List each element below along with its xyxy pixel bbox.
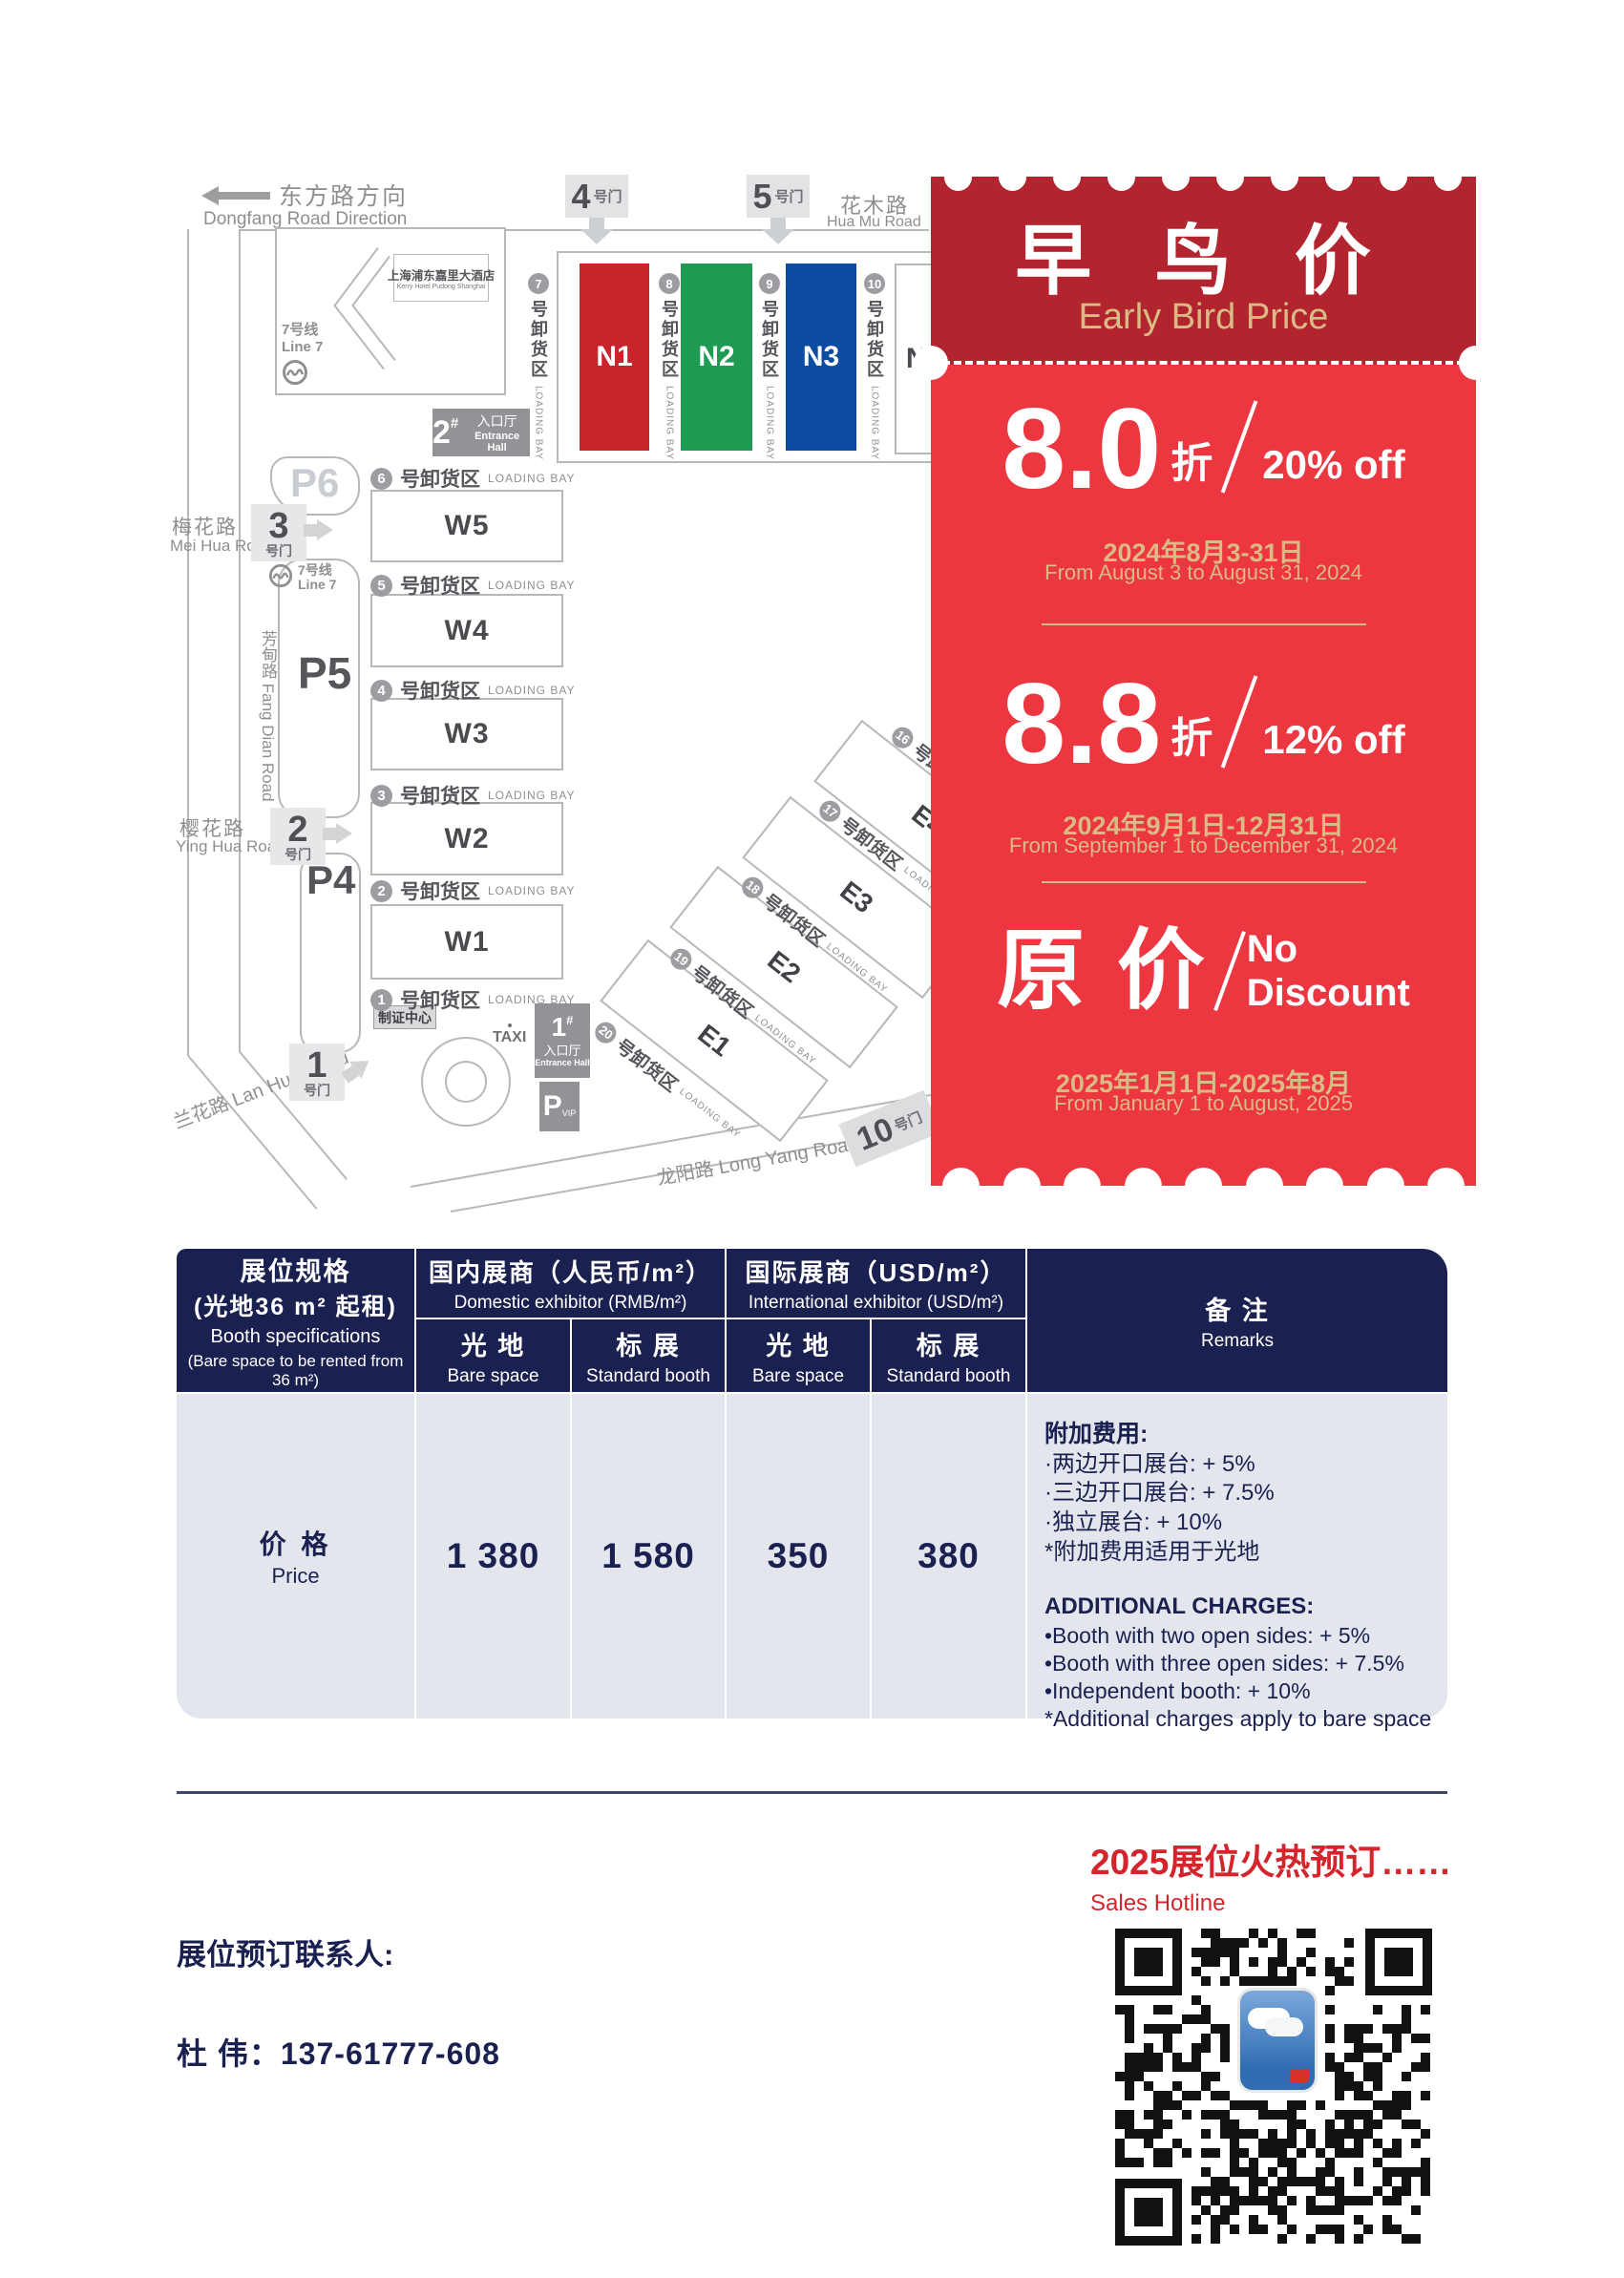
- metro-line7-p5: 7号线 Line 7: [268, 563, 336, 591]
- qr-center-logo: [1237, 1988, 1318, 2093]
- hall-w2: W2: [370, 802, 563, 875]
- hall-n1: N1: [580, 264, 649, 451]
- scallop: [1306, 1168, 1343, 1205]
- slash: [1221, 675, 1258, 768]
- gate-4-arrow-icon: [589, 218, 604, 229]
- sales-hotline: 2025展位火热预订…… Sales Hotline: [1090, 1833, 1451, 1917]
- hall-w1: W1: [370, 904, 563, 980]
- loading-bay-9: 9号卸货区LOADING BAY: [757, 273, 782, 460]
- entrance-hall-2: 2# 入口厅 Entrance Hall: [432, 409, 530, 456]
- vip-parking: PVIP: [539, 1082, 580, 1131]
- intl-bare-header: 光 地Bare space: [727, 1319, 870, 1392]
- scallop: [1185, 1168, 1222, 1205]
- scallop: [944, 163, 972, 191]
- loading-bay-5: 5号卸货区LOADING BAY: [370, 571, 575, 600]
- scallop: [1434, 163, 1462, 191]
- gate-3: 3号门: [251, 504, 306, 561]
- road-line: [239, 229, 241, 1052]
- scallop: [1271, 163, 1298, 191]
- scallop: [942, 1168, 980, 1205]
- loading-bay-1: 1号卸货区LOADING BAY: [370, 985, 575, 1014]
- col-spec-header: 展位规格 (光地36 m² 起租) Booth specifications (…: [177, 1249, 414, 1392]
- intl-header: 国际展商（USD/m²） International exhibitor (US…: [727, 1249, 1025, 1318]
- gate-5-arrow-icon: [762, 229, 794, 244]
- scallop: [1107, 163, 1135, 191]
- scallop: [1053, 163, 1081, 191]
- price-intl-standard: 380: [872, 1394, 1025, 1719]
- contact-phone[interactable]: 杜 伟：137-61777-608: [177, 2030, 500, 2074]
- entrance-hall-1: 1# 入口厅 Entrance Hall: [535, 1003, 590, 1078]
- loading-bay-4: 4号卸货区LOADING BAY: [370, 676, 575, 705]
- tier-2: 8.8 折 12% off: [931, 673, 1476, 770]
- scallop: [1003, 1168, 1041, 1205]
- slash: [1213, 931, 1246, 1011]
- price-domestic-bare: 1 380: [416, 1394, 570, 1719]
- gate-4: 4号门: [565, 175, 628, 218]
- coupon-notch-right: [1459, 346, 1493, 380]
- gate-2: 2号门: [270, 808, 326, 865]
- scallop: [1427, 1168, 1465, 1205]
- gate-1: 1号门: [289, 1044, 345, 1101]
- intl-standard-header: 标 展Standard booth: [872, 1319, 1025, 1392]
- scallop: [1380, 163, 1407, 191]
- price-domestic-standard: 1 580: [572, 1394, 725, 1719]
- yinghua-road-label-en: Ying Hua Road: [176, 837, 285, 856]
- dongfang-road-label-zh: 东方路方向: [279, 178, 408, 212]
- loading-bay-6: 6号卸货区LOADING BAY: [370, 464, 575, 493]
- remarks-cell: 附加费用: ·两边开口展台: + 5% ·三边开口展台: + 7.5% ·独立展…: [1027, 1394, 1447, 1719]
- metro-icon: [268, 563, 293, 588]
- gold-divider: [1042, 623, 1366, 625]
- hotline-title: 2025展位火热预订……: [1090, 1833, 1451, 1885]
- loading-bay-2: 2号卸货区LOADING BAY: [370, 876, 575, 905]
- taxi-label: TAXI: [493, 1023, 526, 1046]
- hotline-subtitle: Sales Hotline: [1090, 1890, 1451, 1917]
- scallop: [1246, 1168, 1283, 1205]
- coupon-divider: [931, 361, 1476, 365]
- coupon-title-en: Early Bird Price: [931, 297, 1476, 338]
- scallop: [1216, 163, 1244, 191]
- fangdian-road-label: 芳甸路 Fang Dian Road: [256, 630, 280, 831]
- tier-3-date-en: From January 1 to August, 2025: [931, 1091, 1476, 1116]
- domestic-header: 国内展商（人民币/m²） Domestic exhibitor (RMB/m²): [416, 1249, 725, 1318]
- remarks-header: 备 注Remarks: [1027, 1249, 1447, 1392]
- footer-divider: [177, 1791, 1447, 1794]
- hall-w5: W5: [370, 490, 563, 562]
- hall-w4: W4: [370, 594, 563, 667]
- loading-bay-7: 7号卸货区LOADING BAY: [526, 273, 551, 460]
- domestic-standard-header: 标 展Standard booth: [572, 1319, 725, 1392]
- huamu-road-label-en: Hua Mu Road: [827, 214, 921, 231]
- metro-icon: [282, 359, 308, 386]
- roundabout-inner: [445, 1061, 487, 1103]
- price-row-label: 价 格 Price: [177, 1394, 414, 1719]
- loading-bay-8: 8号卸货区LOADING BAY: [657, 273, 682, 460]
- slash: [1221, 400, 1258, 493]
- gold-divider: [1042, 881, 1366, 883]
- hotel-label: 上海浦东嘉里大酒店 Kerry Hotel Pudong Shanghai: [393, 254, 489, 302]
- scallop: [1162, 163, 1190, 191]
- road-line: [187, 229, 189, 1056]
- domestic-bare-header: 光 地Bare space: [416, 1319, 570, 1392]
- loading-bay-10: 10号卸货区LOADING BAY: [862, 273, 887, 460]
- hall-n2: N2: [681, 264, 752, 451]
- metro-line7-hotel: 7号线 Line 7: [282, 319, 323, 390]
- hall-w3: W3: [370, 698, 563, 770]
- coupon-notch-left: [914, 346, 948, 380]
- price-intl-bare: 350: [727, 1394, 870, 1719]
- loading-bay-3: 3号卸货区LOADING BAY: [370, 781, 575, 810]
- tier-1-date-en: From August 3 to August 31, 2024: [931, 560, 1476, 585]
- scallop: [1325, 163, 1353, 191]
- scallop: [1064, 1168, 1101, 1205]
- tier-1: 8.0 折 20% off: [931, 398, 1476, 496]
- gate-2-arrow-icon: [323, 823, 352, 844]
- gate-4-arrow-icon: [580, 229, 613, 244]
- parking-p5-label: P5: [298, 647, 351, 699]
- scallop: [1367, 1168, 1404, 1205]
- tier-3: 原 价 No Discount: [931, 927, 1476, 1015]
- tier-2-date-en: From September 1 to December 31, 2024: [931, 833, 1476, 858]
- gate-5: 5号门: [747, 175, 810, 218]
- hall-n3: N3: [786, 264, 856, 451]
- contact-label: 展位预订联系人:: [177, 1930, 393, 1973]
- taxi-dot: [508, 1023, 512, 1027]
- scallop: [999, 163, 1026, 191]
- gate-3-arrow-icon: [304, 519, 333, 540]
- coupon-title-zh: 早 鸟 价: [931, 200, 1476, 310]
- qr-code[interactable]: [1115, 1929, 1432, 2246]
- gate-5-arrow-icon: [770, 218, 786, 229]
- flyer-page: 东方路方向 Dongfang Road Direction 花木路 Hua Mu…: [0, 0, 1624, 2278]
- early-bird-coupon: 早 鸟 价 Early Bird Price 8.0 折 20% off 202…: [931, 177, 1476, 1186]
- parking-p6-label: P6: [290, 460, 339, 506]
- scallop: [1125, 1168, 1162, 1205]
